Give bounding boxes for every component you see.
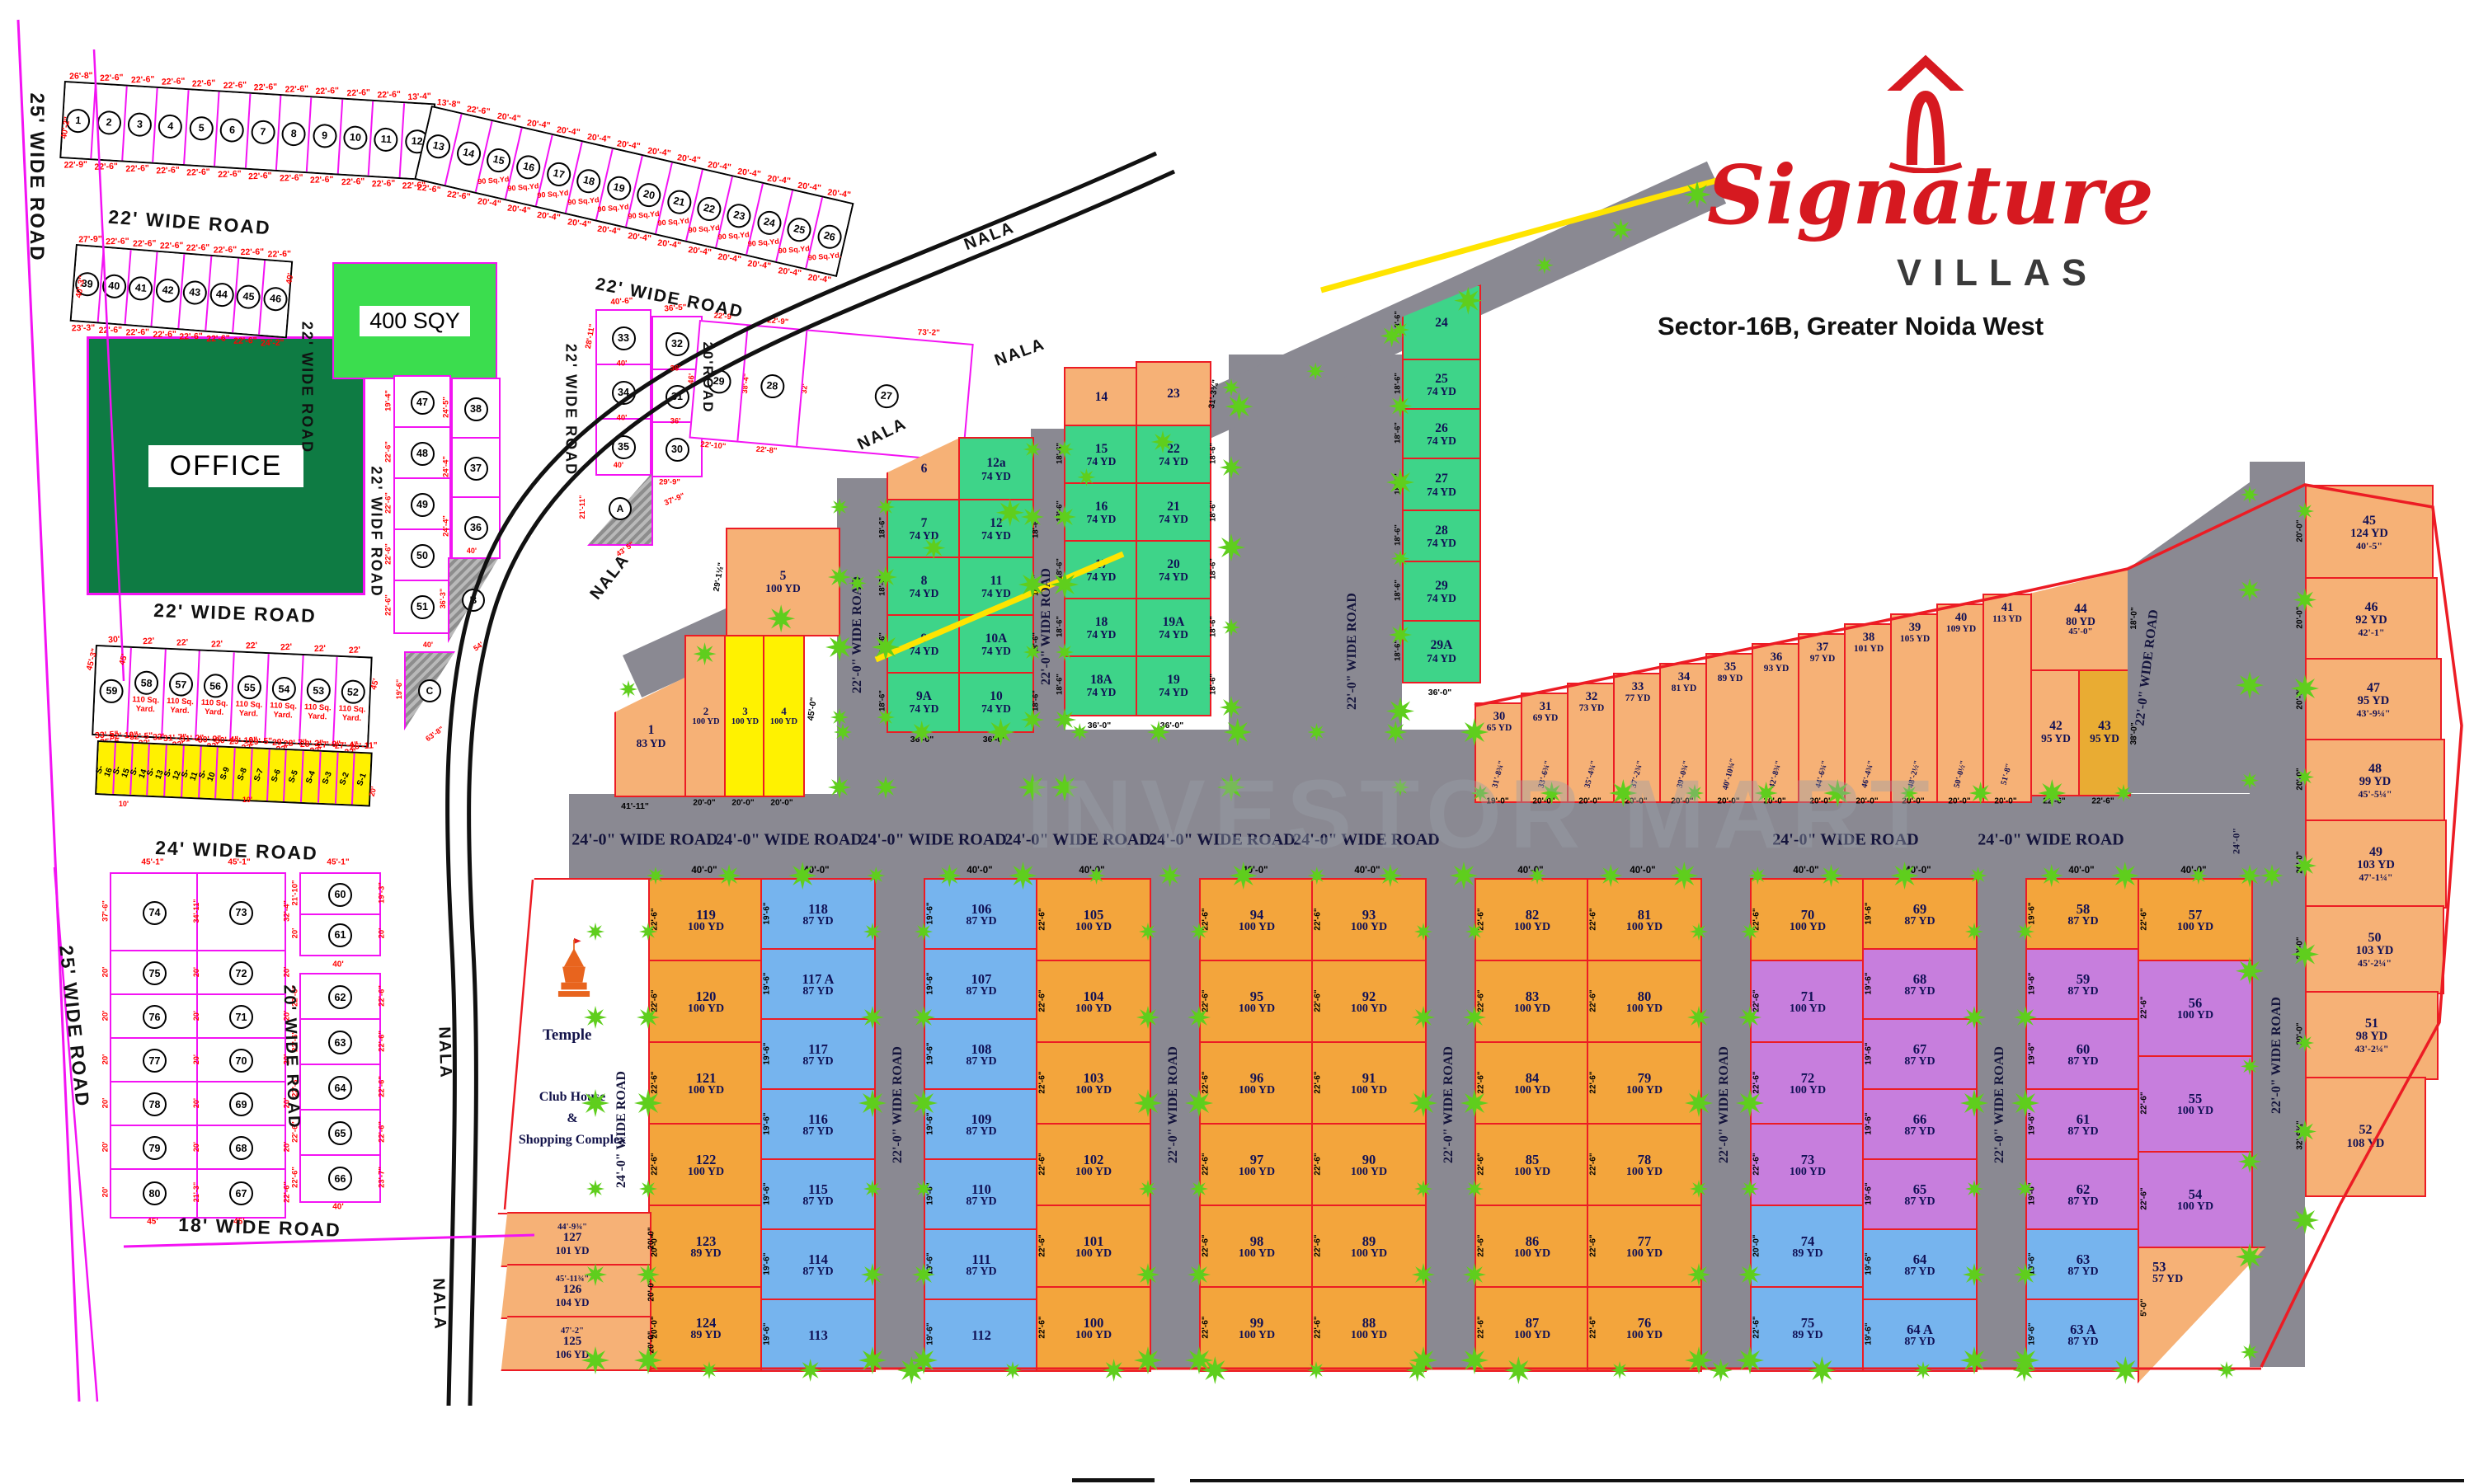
dim-label: 45' [369,678,381,691]
dim-label: 20'-0" [731,799,754,808]
plot-number: 5 [780,570,787,583]
plot-number: 83 [1526,989,1540,1003]
plot-number: S-8 [236,766,249,781]
plot-size: 100 YD [1239,1248,1275,1261]
plot-102: 102100 YD [1036,1123,1151,1208]
plot-53: 5357 YD [2138,1247,2266,1383]
dim-label: 41'-11" [621,801,649,811]
dim-label: 22'-6" [1038,1316,1047,1338]
plot-size: 87 YD [966,1266,996,1279]
tree-icon [863,923,882,941]
plot-number: 103 [1084,1071,1104,1085]
plot-area-label: 110 Sq. Yard. [198,699,232,718]
plot-55: 5522'22'110 Sq. Yard. [229,652,267,741]
plot-number: 6 [219,117,245,143]
dim-label: 22'-6" [279,172,303,183]
plot-strip-272829: 2922'-9"22'-10"38'-4"2822'-9"22'-8"32'27… [689,320,973,463]
plot-122: 122100 YD [648,1123,764,1208]
tree-icon [1077,468,1095,486]
plot-9: 974 YD [887,614,962,675]
plot-98: 98100 YD [1199,1205,1315,1289]
dim-label: 22'-6" [1314,1316,1323,1338]
dim-label: 19'-6" [763,902,772,924]
plot-number: 60 [328,883,352,907]
plot-size: 87 YD [802,916,833,928]
plot-size: 100 YD [1514,1248,1550,1261]
plot-number: 53 [306,678,331,702]
plot-number: 58 [2077,902,2091,916]
dim-label: 37'-9" [663,491,686,508]
dim-label: 20'-0" [1752,1234,1761,1256]
plot-66: 6687 YD [1862,1088,1978,1162]
tree-icon [1134,1346,1162,1374]
plot-size: 101 YD [1854,644,1884,654]
plot-number: C [418,679,441,702]
plot-S-1: S-126'-11" [351,754,370,805]
tree-icon [1201,1356,1229,1384]
dim-label: 19'-4" [384,390,393,411]
plot-41: 41113 YD51'-8" [1982,594,2032,803]
tree-icon [2293,854,2316,877]
plot-S-9: S-930'-4" [214,747,233,799]
plot-71: 71 [196,993,286,1040]
plot-number: 46 [263,286,289,312]
tree-icon [2236,1242,2264,1270]
tree-icon [1307,1361,1325,1379]
plot-size: 87 YD [966,916,996,928]
logo-subtitle: VILLAS [1897,251,2098,294]
plot-108: 10887 YD [924,1018,1039,1092]
tree-icon [1136,1263,1159,1286]
plot-S-3: S-327'-9" [317,752,336,804]
bottom-bar-left [1072,1478,1155,1482]
plot-93: 93100 YD [1311,878,1427,963]
dim-label: 22'-6" [1752,1153,1761,1175]
plot-S-15: S-1532'-10" [112,743,131,795]
plot-number: 117 [808,1042,828,1056]
dim-label: 19'-6" [1865,1322,1874,1345]
tree-icon [1389,395,1412,418]
plot-number: 43 [182,279,208,305]
tree-icon [1412,1006,1435,1029]
plot-4: 422'-6"22'-6" [152,88,187,164]
plot-size: 89 YD [1718,674,1743,683]
dim-label: 29'-9" [659,478,680,487]
plot-number: 54 [271,676,296,701]
dim-label: 22'-6" [248,171,272,181]
plot-size: 99 YD [2359,776,2392,788]
road-label: NALA [962,218,1018,255]
tree-icon [874,566,897,589]
dim-label: 20'-0" [2296,519,2305,542]
plot-number: 100 [1084,1316,1104,1330]
plot-10: 1022'-6"22'-6" [337,100,373,176]
plot-number: 62 [2077,1182,2091,1196]
dim-label: 22'-10" [700,440,727,452]
plot-number: 22 [1167,443,1180,456]
plot-number: 23 [725,201,754,230]
road-label: 22'-0" WIDE ROAD [1992,1046,2007,1163]
plot-number: 63 [2077,1252,2091,1266]
plot-126: 126104 YD45'-11¾" [493,1264,651,1319]
plot-S-8: S-829'-10" [232,748,251,800]
tree-icon [867,866,885,885]
tree-icon [788,862,816,890]
plot-115: 11587 YD [760,1158,876,1232]
dim-label: 26'-11" [349,740,377,752]
dim-label: 20'-4" [586,132,611,144]
plot-number: 73 [229,901,253,925]
dim-label: 19'-6" [763,1252,772,1275]
tree-icon [1504,1356,1532,1384]
plot-5: 522'-6"22'-6" [183,90,219,166]
tree-icon [1222,618,1240,636]
400sqy-block: 400 SQY [332,262,497,379]
dim-label: 40' [332,960,344,970]
plot-number: 65 [1913,1182,1927,1196]
tree-icon [1224,718,1252,746]
tree-icon [1463,1006,1486,1029]
plot-number: 106 [971,902,992,916]
plot-size: 87 YD [2067,1056,2098,1068]
tree-icon [634,1089,662,1117]
plot-29A: 29A74 YD [1402,620,1481,683]
tree-icon [1147,721,1170,744]
plot-37: 37 [451,437,501,500]
plot-number: 78 [1638,1153,1652,1167]
plot-number: 6 [921,463,928,476]
plot-112: 112 [924,1298,1039,1372]
dim-label: 45'-0" [2068,627,2092,637]
plot-number: 57 [2189,908,2203,922]
plot-79: 79 [110,1125,200,1172]
tree-icon [584,1006,607,1029]
plot-number: 9 [312,123,337,148]
plot-number: 75 [143,961,167,985]
plot-number: 39 [1909,622,1921,634]
dim-label: 18'-6" [1056,674,1065,695]
plot-number: 115 [808,1182,828,1196]
plot-number: 3 [742,706,748,717]
plot-number: 2 [703,706,709,717]
plot-area-label: 110 Sq. Yard. [129,696,162,715]
plot-number: 19 [1167,674,1180,687]
dim-label: 20'-4" [597,224,622,237]
dim-label: 22'-6" [1314,1071,1323,1093]
road-label: 25' WIDE ROAD [25,92,48,261]
plot-44: 4480 YD45'-0" [2030,569,2131,671]
dim-label: 22'-6" [416,182,441,195]
dim-label: 22'-6" [1477,1316,1486,1338]
tree-icon [1969,782,1992,805]
dim-label: 20'-4" [647,146,671,158]
plot-number: 57 [168,672,193,697]
plot-25: 2574 YD [1402,359,1481,411]
tree-icon [1225,392,1253,420]
plot-121: 121100 YD [648,1041,764,1126]
plot-size: 100 YD [692,717,719,726]
plot-106: 10687 YD [924,878,1039,951]
tree-icon [647,866,665,885]
dim-label: 20'-4" [526,118,551,130]
plot-size: 74 YD [1159,687,1188,698]
plot-2: 222'-6"22'-6" [91,84,126,160]
plot-size: 74 YD [1087,571,1117,583]
plot-80: 80100 YD [1587,960,1702,1045]
plot-number: 59 [99,679,124,703]
plot-1: 183 YD [614,676,688,797]
plot-45: 45124 YD40'-5" [2305,485,2434,580]
plot-size: 100 YD [688,1085,724,1097]
plot-size: 74 YD [1159,629,1188,641]
tree-icon [858,1346,887,1374]
plot-number: 25 [785,215,814,244]
plot-91: 91100 YD [1311,1041,1427,1126]
tree-icon [2296,502,2314,520]
plot-size: 100 YD [1075,1248,1112,1261]
plot-number: 21 [1167,500,1180,514]
tree-icon [2038,779,2066,807]
plot-number: 88 [1362,1316,1376,1330]
dim-label: 22' [176,637,189,648]
plot-size: 105 YD [1900,634,1930,644]
dim-label: 19'-6" [1865,902,1874,924]
plot-size: 80 YD [2066,616,2095,627]
plot-size: 100 YD [1351,1085,1387,1097]
plot-number: 45 [2363,514,2376,528]
dim-label: 23'-7" [378,1167,387,1188]
dim-label: 19'-6" [2028,1322,2037,1345]
dim-label: 20'-4" [747,259,772,271]
tree-icon [1914,1361,1932,1379]
logo-tagline: Sector-16B, Greater Noida West [1658,312,2044,341]
plot-10A: 10A74 YD [958,614,1034,675]
plot-number: 114 [808,1252,828,1266]
tree-icon [861,1263,884,1286]
dim-label: 22'-6" [377,89,401,100]
plot-number: 56 [2189,996,2203,1010]
dim-label: 21'-10" [291,880,300,905]
plot-77: 77100 YD [1587,1205,1702,1289]
plot-77: 77 [110,1037,200,1084]
plot-107: 10787 YD [924,948,1039,1021]
plot-7: 722'-6"22'-6" [244,94,280,170]
tree-icon [1963,1263,1986,1286]
plot-50: 50103 YD45'-2¼" [2305,905,2444,994]
plot-size: 87 YD [2067,916,2098,928]
plot-number: 27 [1435,472,1448,486]
plot-43: 4395 YD [2078,668,2131,796]
plot-number: 10 [990,690,1003,703]
plot-number: 119 [696,908,716,922]
plot-73: 73100 YD [1750,1123,1865,1208]
road-label: 22'-0" WIDE ROAD [1345,593,1360,710]
plot-number: S-7 [253,767,266,782]
plot-number: 41 [128,275,153,301]
dim-label: 18'-6" [1394,373,1403,394]
plot-59: 5987 YD [2025,948,2141,1021]
tree-icon [2016,1180,2034,1198]
plot-95: 95100 YD [1199,960,1315,1045]
dim-label: 22'-6" [1477,1153,1486,1175]
plot-number: 70 [229,1049,253,1073]
plot-number: 31 [1540,701,1552,713]
plot-number: 42 [2049,720,2062,733]
dim-label: 18'-6" [878,517,887,538]
plot-16: 1674 YD [1064,482,1139,543]
tree-icon [1053,708,1076,731]
plot-19A: 19A74 YD [1136,598,1211,659]
road-label: NALA [586,551,633,603]
dim-label: 36'-0" [1088,721,1112,730]
plot-97: 97100 YD [1199,1123,1315,1208]
dim-label: 20'-4" [737,167,762,179]
dim-label: 22'-6" [206,334,230,345]
tree-icon [830,498,849,516]
plot-number: 63 A [2070,1322,2096,1336]
plot-size: 77 YD [1625,693,1651,703]
plot-88: 88100 YD [1311,1286,1427,1372]
plot-28: 2874 YD [1402,510,1481,564]
plot-number: 61 [2077,1112,2091,1126]
dim-label: 20' [283,966,292,977]
plot-size: 87 YD [1904,986,1935,998]
tree-icon [2260,864,2284,887]
tree-icon [1460,1346,1489,1374]
tree-icon [872,633,900,661]
dim-label: 22'-6" [1314,989,1323,1012]
plot-number: 74 [143,901,167,925]
tree-icon [1220,456,1243,479]
road-label: 22'-0" WIDE ROAD [1166,1046,1181,1163]
plot-number: 9 [921,632,928,646]
plot-21: 2174 YD [1136,482,1211,543]
dim-label: 20' [378,928,387,939]
plot-number: 34 [1678,671,1691,683]
plot-number: 61 [328,923,352,947]
road-label: NALA [434,1026,454,1079]
tree-icon [1609,218,1632,242]
tree-icon [1465,923,1484,941]
dim-label: 37'-6" [101,900,111,922]
plot-68: 6887 YD [1862,948,1978,1021]
tree-icon [700,1361,718,1379]
plot-101: 101100 YD [1036,1205,1151,1289]
plot-number: 80 [1638,989,1652,1003]
dim-label: 50'-0½" [1954,759,1969,789]
dim-label: 20'-4" [506,203,531,215]
plot-number: 125 [563,1336,582,1349]
plot-73: 73 [196,872,286,953]
dim-label: 22'-6" [1202,1234,1211,1256]
tree-icon [1460,1089,1489,1117]
dim-label: 22'-6" [384,594,393,616]
plot-size: 100 YD [1790,1003,1826,1016]
plot-number: S-4 [304,769,317,784]
tree-icon [1139,923,1157,941]
road-label: 22'-0" WIDE ROAD [891,1046,905,1163]
plot-size: 83 YD [637,738,666,749]
dim-label: 22'-6" [1314,908,1323,930]
dim-label: 45'-2¼" [2358,958,2392,969]
plot-size: 89 YD [690,1248,721,1261]
plot-S-5: S-528'-7" [283,750,302,802]
plot-area-label: 90 Sq.Yd. [778,244,811,255]
plot-number: 76 [143,1005,167,1029]
tree-icon [1306,362,1324,380]
dim-label: 22'-6" [346,87,370,98]
tree-icon [637,1006,660,1029]
dim-label: 22'-6" [94,162,118,172]
plot-area-label: 90 Sq.Yd. [657,216,691,227]
road-label: 24'-0" WIDE ROAD [860,831,1006,850]
plot-size: 89 YD [1792,1248,1823,1261]
plot-number: 77 [1638,1234,1652,1248]
plot-number: 71 [229,1005,253,1029]
dim-label: 18'-6" [1394,422,1403,444]
tree-icon [2238,864,2261,887]
plot-number: 16 [1095,500,1108,514]
plot-area-label: 90 Sq.Yd. [597,202,631,213]
dim-label: 22'-6" [1477,1234,1486,1256]
plot-number: 37 [464,457,488,481]
tree-icon [1460,718,1489,746]
plot-number: 17 [1095,558,1108,571]
plot-size: 100 YD [1626,1003,1663,1016]
plot-number: 20 [635,181,664,209]
dim-label: 22'-6" [341,176,365,187]
tree-icon [1023,440,1042,458]
plot-size: 74 YD [981,703,1011,715]
plot-99: 99100 YD [1199,1286,1315,1372]
plot-number: 85 [1526,1153,1540,1167]
tree-icon [1004,1361,1022,1379]
dim-label: 22'-6" [1589,1316,1598,1338]
plot-number: 24 [1435,317,1448,330]
tree-icon [1070,723,1089,741]
tree-icon [1151,430,1174,453]
tree-icon [799,1359,822,1382]
plot-number: 34 [612,381,636,405]
dim-label: 22'-6" [2140,1092,2149,1114]
plot-46: 4692 YD42'-1" [2305,577,2438,661]
plot-number: 29 [1435,580,1448,593]
road-label: 24'-0" WIDE ROAD [716,831,862,850]
road-label: NALA [992,335,1048,370]
tree-icon [1222,378,1240,397]
tree-icon [1465,1180,1484,1198]
plot-33: 33 [595,309,651,367]
dim-label: 18'-6" [1209,674,1218,695]
tree-icon [2114,784,2133,802]
plot-number: 38 [1863,632,1875,644]
plot-62: 62 [299,973,381,1021]
tree-icon [1969,866,1987,885]
plot-size: 100 YD [1514,1167,1550,1179]
dim-label: 22'-6" [447,190,472,202]
plot-number: 49 [2369,846,2382,860]
dim-label: 47'-1¼" [2359,872,2393,883]
plot-number: 8 [921,575,928,588]
tree-icon [2296,768,2314,787]
tree-icon [2291,941,2319,969]
plot-119: 119100 YD [648,878,764,963]
dim-label: 22'-6" [378,1076,387,1097]
plot-size: 100 YD [1351,922,1387,934]
plot-number: 28 [1435,524,1448,538]
dim-label: 24'-4" [442,515,451,537]
dim-label: 22'-9" [767,316,789,326]
